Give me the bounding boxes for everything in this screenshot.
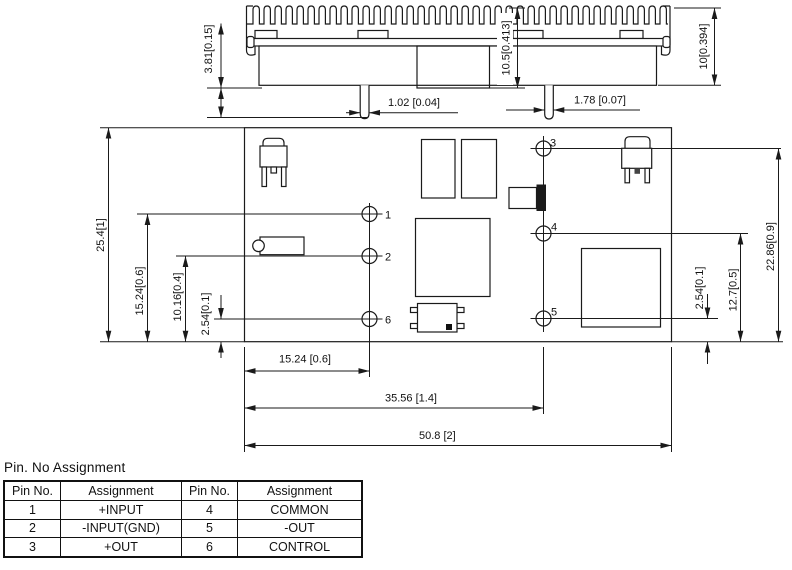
assignment-cell: -INPUT(GND) xyxy=(61,519,182,538)
table-header-row: Pin No. Assignment Pin No. Assignment xyxy=(4,481,362,500)
dim-pin-dia-large-label: 1.78 [0.07] xyxy=(574,95,626,107)
dim-pin-dia-small-label: 1.02 [0.04] xyxy=(388,97,440,109)
dim-overall-height-label: 10[0.394] xyxy=(698,24,710,70)
notched-component xyxy=(253,237,304,255)
capacitor-1 xyxy=(422,140,456,199)
pin-no-cell: 1 xyxy=(4,500,61,519)
base-plate-right-cap xyxy=(663,37,670,48)
dim-pin2-y-label: 10.16[0.4] xyxy=(172,273,184,322)
assignment-cell: +OUT xyxy=(61,538,182,557)
side-view-pin-large xyxy=(545,85,554,119)
pin-2-label: 2 xyxy=(385,252,391,264)
header-pin-no: Pin No. xyxy=(4,481,61,500)
dim-standoff-label: 3.81[0.15] xyxy=(203,25,215,74)
heatsink-fins xyxy=(247,6,669,24)
base-plate-left-cap xyxy=(247,37,254,48)
diode xyxy=(509,185,546,212)
header-assignment: Assignment xyxy=(61,481,182,500)
optocoupler xyxy=(411,304,465,333)
assignment-cell: +INPUT xyxy=(61,500,182,519)
pin-5-label: 5 xyxy=(551,307,557,319)
pin-6-label: 6 xyxy=(385,315,391,327)
table-row: 3 +OUT 6 CONTROL xyxy=(4,538,362,557)
dim-pin-col2-x-label: 35.56 [1.4] xyxy=(385,393,437,405)
header-assignment: Assignment xyxy=(238,481,363,500)
pin-4-label: 4 xyxy=(551,222,557,234)
dim-mid-height-label: 10.5[0.413] xyxy=(501,20,513,75)
dim-pin5-y-label: 2.54[0.1] xyxy=(694,267,706,310)
plan-view xyxy=(137,128,781,414)
pin-no-cell: 3 xyxy=(4,538,61,557)
header-pin-no: Pin No. xyxy=(182,481,238,500)
side-view-pin-small xyxy=(360,85,369,118)
table-row: 1 +INPUT 4 COMMON xyxy=(4,500,362,519)
pin-assignment-section: Pin. No Assignment Pin No. Assignment Pi… xyxy=(3,460,359,558)
dim-pin-col1-x-label: 15.24 [0.6] xyxy=(279,354,331,366)
datasheet-mechanical-page: 3.81[0.15] 10.5[0.413] 10[0.394] 1.02 [0… xyxy=(0,0,792,570)
pin-no-cell: 2 xyxy=(4,519,61,538)
dim-pin6-y-label: 2.54[0.1] xyxy=(200,293,212,336)
dim-pin3-y-label: 22.86[0.9] xyxy=(765,222,777,271)
dim-pin4-y-label: 12.7[0.5] xyxy=(728,269,740,312)
assignment-cell: CONTROL xyxy=(238,538,363,557)
mounting-tab xyxy=(620,31,643,39)
dim-pin1-y-label: 15.24[0.6] xyxy=(134,267,146,316)
pin-no-cell: 4 xyxy=(182,500,238,519)
table-row: 2 -INPUT(GND) 5 -OUT xyxy=(4,519,362,538)
assignment-cell: COMMON xyxy=(238,500,363,519)
mounting-tab xyxy=(255,31,277,39)
pin-3-label: 3 xyxy=(550,138,556,150)
pin-no-cell: 6 xyxy=(182,538,238,557)
base-plate xyxy=(251,39,667,47)
pin-assignment-table: Pin No. Assignment Pin No. Assignment 1 … xyxy=(3,480,363,558)
pin-1-label: 1 xyxy=(385,210,391,222)
dim-board-width-label: 50.8 [2] xyxy=(419,430,456,442)
dim-board-height-label: 25.4[1] xyxy=(95,218,107,252)
transformer xyxy=(416,219,491,297)
assignment-cell: -OUT xyxy=(238,519,363,538)
capacitor-2 xyxy=(462,140,497,199)
pin-no-cell: 5 xyxy=(182,519,238,538)
pin-table-title: Pin. No Assignment xyxy=(4,460,359,475)
module-body xyxy=(259,46,657,85)
mounting-tab xyxy=(358,31,388,39)
